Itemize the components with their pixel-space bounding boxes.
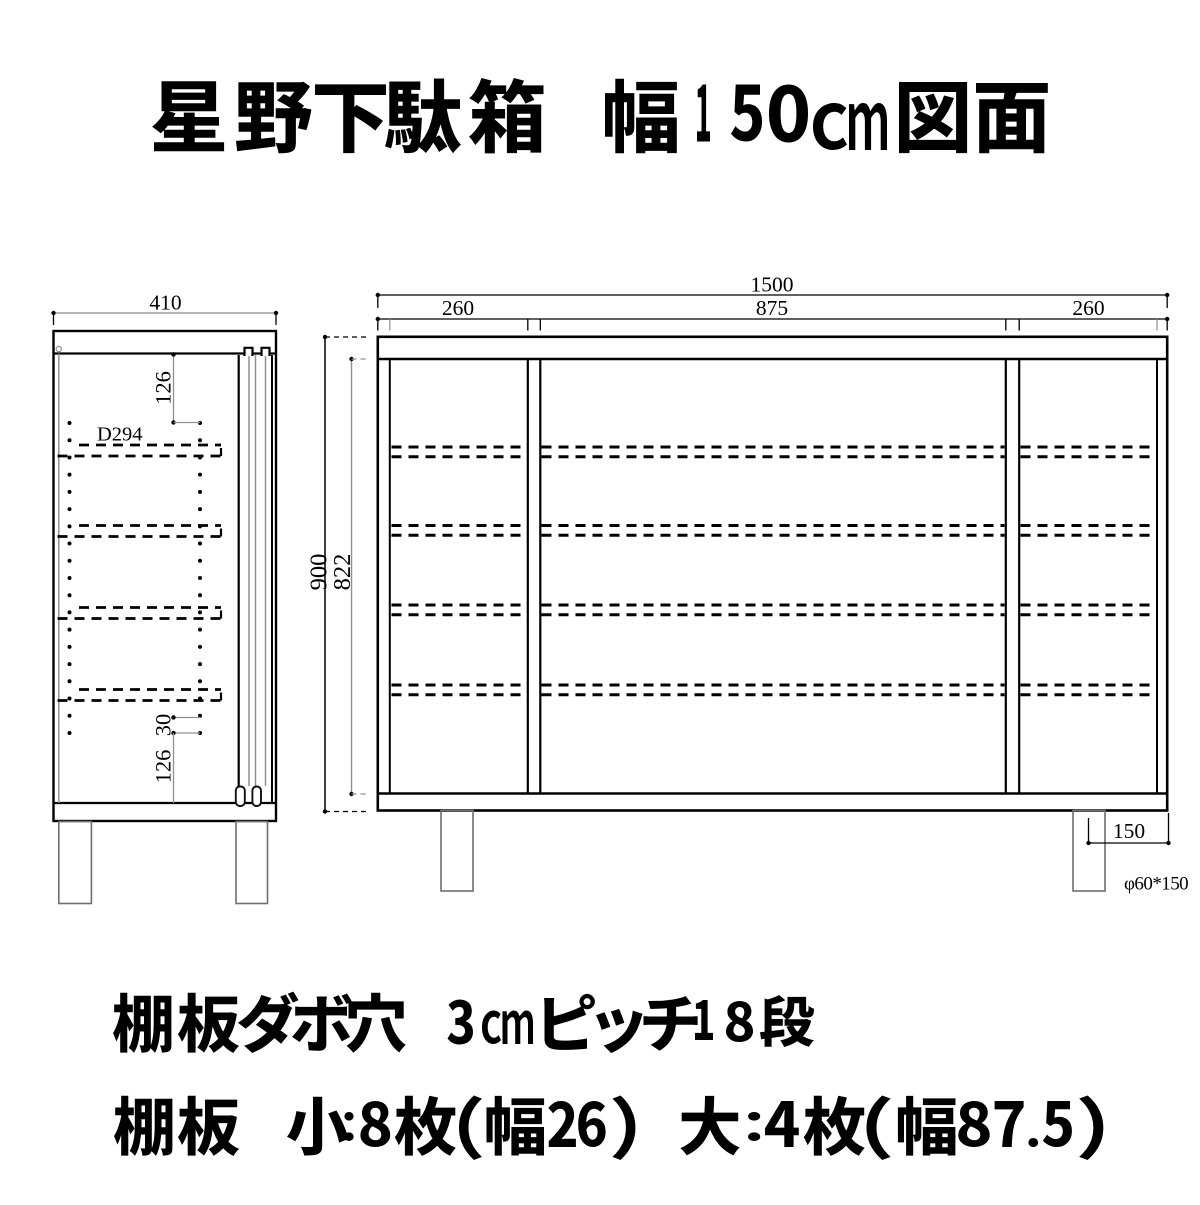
svg-text:150: 150 xyxy=(1113,819,1145,843)
svg-text:875: 875 xyxy=(756,296,788,320)
svg-text:260: 260 xyxy=(1072,296,1104,320)
svg-text:822: 822 xyxy=(329,554,356,591)
svg-text:126: 126 xyxy=(151,750,176,784)
svg-text:410: 410 xyxy=(149,291,181,315)
svg-text:30: 30 xyxy=(151,714,176,737)
svg-text:φ60*150: φ60*150 xyxy=(1124,874,1188,895)
svg-text:260: 260 xyxy=(442,296,474,320)
svg-text:126: 126 xyxy=(151,371,176,405)
svg-text:D294: D294 xyxy=(97,424,143,446)
svg-text:1500: 1500 xyxy=(751,273,794,297)
